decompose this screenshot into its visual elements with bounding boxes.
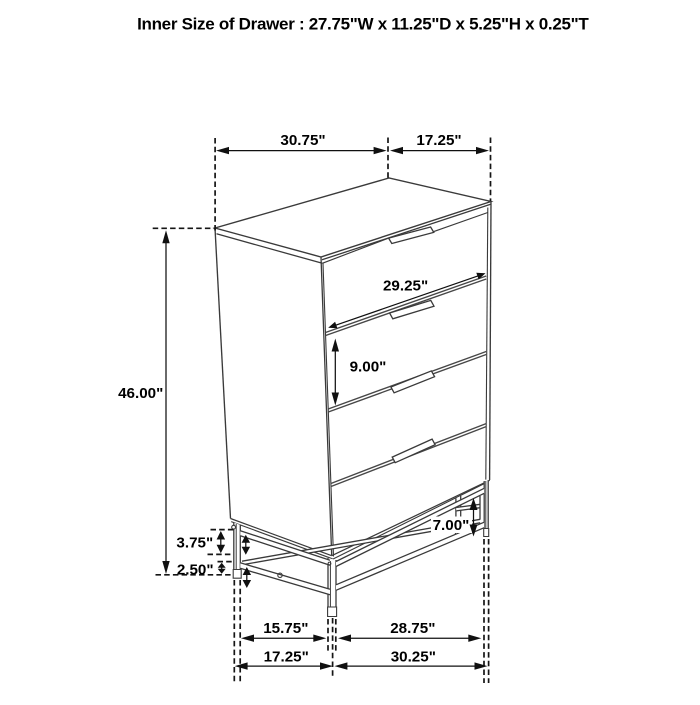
svg-text:17.25": 17.25" xyxy=(416,132,461,149)
svg-text:2.50": 2.50" xyxy=(177,562,214,579)
svg-text:28.75": 28.75" xyxy=(390,620,435,637)
svg-text:46.00": 46.00" xyxy=(118,385,163,402)
svg-text:30.25": 30.25" xyxy=(391,649,436,666)
svg-text:17.25": 17.25" xyxy=(264,649,309,666)
svg-text:15.75": 15.75" xyxy=(263,620,308,637)
svg-text:9.00": 9.00" xyxy=(350,359,387,376)
svg-text:7.00": 7.00" xyxy=(433,517,470,534)
svg-text:Inner Size of Drawer : 27.75"W: Inner Size of Drawer : 27.75"W x 11.25"D… xyxy=(137,15,589,34)
svg-text:3.75": 3.75" xyxy=(176,535,213,552)
svg-text:29.25": 29.25" xyxy=(383,278,428,295)
svg-text:30.75": 30.75" xyxy=(280,132,325,149)
